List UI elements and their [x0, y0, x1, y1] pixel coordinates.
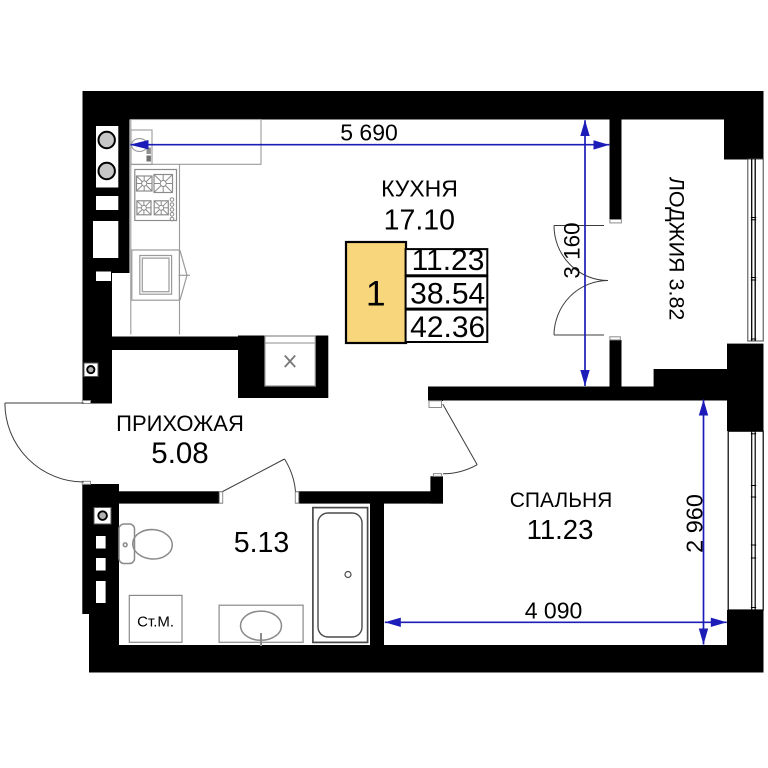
svg-text:5.08: 5.08 [151, 437, 208, 470]
svg-text:СПАЛЬНЯ: СПАЛЬНЯ [510, 489, 613, 512]
svg-text:4 090: 4 090 [525, 598, 583, 624]
svg-text:5 690: 5 690 [340, 120, 398, 146]
svg-text:3 160: 3 160 [560, 222, 585, 278]
svg-text:11.23: 11.23 [527, 514, 594, 545]
svg-text:2 960: 2 960 [681, 494, 707, 553]
svg-text:38.54: 38.54 [410, 277, 485, 310]
svg-text:ЛОДЖИЯ 3.82: ЛОДЖИЯ 3.82 [665, 177, 689, 321]
svg-text:42.36: 42.36 [410, 311, 485, 344]
svg-text:Ст.М.: Ст.М. [137, 614, 174, 631]
svg-text:5.13: 5.13 [234, 527, 289, 559]
svg-text:17.10: 17.10 [384, 205, 455, 237]
svg-text:1: 1 [366, 273, 386, 313]
svg-text:КУХНЯ: КУХНЯ [381, 175, 458, 201]
svg-text:ПРИХОЖАЯ: ПРИХОЖАЯ [116, 411, 244, 436]
svg-text:11.23: 11.23 [412, 244, 485, 277]
